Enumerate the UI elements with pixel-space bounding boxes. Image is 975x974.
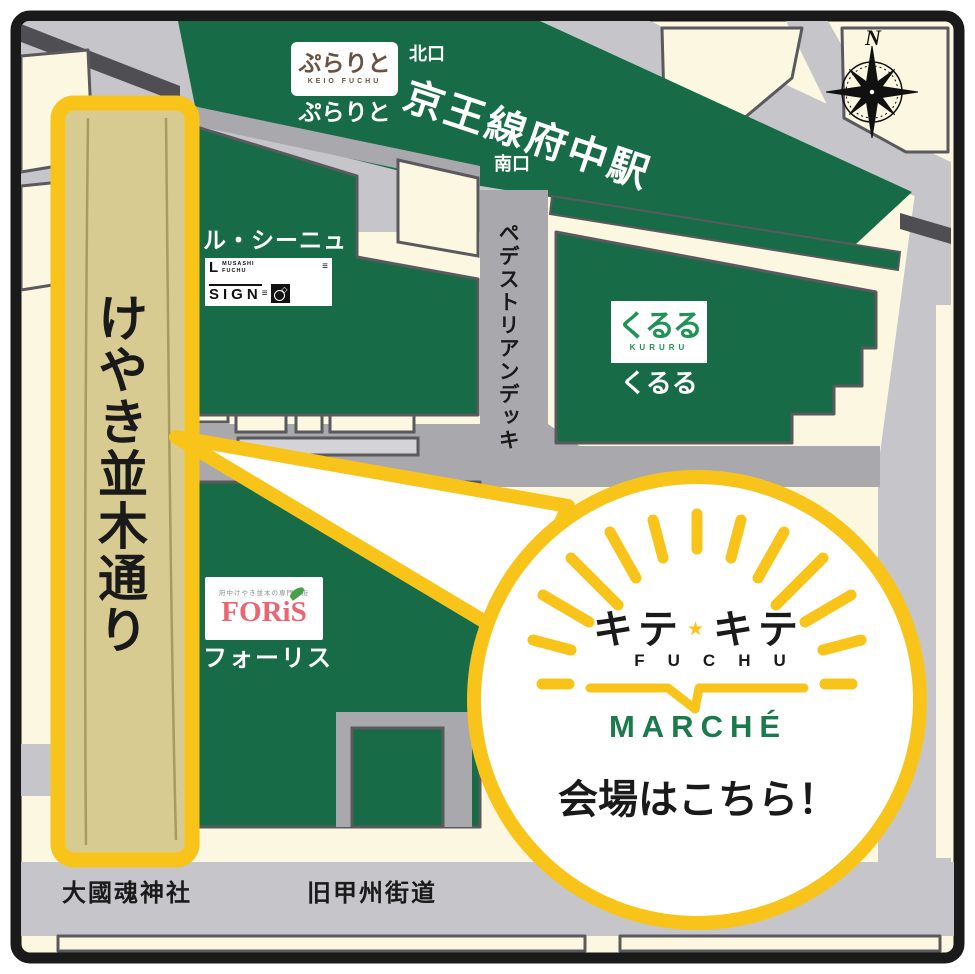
kitekite-left: キテ <box>593 608 683 652</box>
block-south-2 <box>620 936 940 951</box>
purarito-logo-sub: KEIO FUCHU <box>308 78 382 86</box>
purarito-logo: ぷらりと KEIO FUCHU <box>291 42 398 96</box>
compass-north-label: N <box>858 26 888 50</box>
kururu-logo-text: くるる <box>617 312 700 342</box>
lesigne-logo: L MUSASHIFUCHU ≡ SIGN ≡ ◇ <box>205 258 332 306</box>
venue-here-label: 会場はこちら！ <box>545 778 851 822</box>
shrine-label: 大國魂神社 <box>62 881 192 907</box>
lesigne-logo-bars2: ≡ <box>262 288 268 299</box>
star-icon: ★ <box>683 619 713 640</box>
kitekite-logo: キテ★キテ <box>545 608 851 652</box>
lesigne-logo-bars: ≡ <box>322 261 328 272</box>
south-exit-label: 南口 <box>494 155 530 175</box>
fuchu-label: FUCHU <box>545 652 875 671</box>
kururu-logo: くるる KURURU <box>611 301 707 363</box>
lesigne-logo-sign: SIGN <box>209 284 262 304</box>
east-sidewalk <box>936 305 951 858</box>
block-south-1 <box>58 936 585 951</box>
north-exit-label: 北口 <box>409 45 445 65</box>
foris-label: フォーリス <box>203 646 333 672</box>
kitekite-right: キテ <box>713 608 803 652</box>
foris-logo-text: FORiS <box>221 598 306 627</box>
old-koshu-road-label: 旧甲州街道 <box>307 881 437 907</box>
lesigne-logo-musashi-fuchu: MUSASHIFUCHU <box>222 261 254 274</box>
pedestrian-deck-label: ペデストリアンデッキ <box>496 222 519 452</box>
fuchu-area-map: 北口 京王線府中駅 南口 ぷらりと KEIO FUCHU ぷらりと ル・シーニュ… <box>0 0 975 974</box>
lesigne-logo-ornament: ◇ <box>271 284 290 303</box>
marche-label: MARCHÉ <box>545 710 851 744</box>
lesigne-label: ル・シーニュ <box>203 228 347 253</box>
kururu-logo-sub: KURURU <box>630 344 689 353</box>
purarito-logo-text: ぷらりと <box>299 52 391 75</box>
keyaki-street-label: けやき並木通り <box>91 292 146 656</box>
lesigne-logo-l: L <box>209 261 218 275</box>
foris-annex-building <box>352 728 443 827</box>
block-lesigne-east <box>398 160 478 256</box>
purarito-label: ぷらりと <box>291 100 398 125</box>
foris-logo: 府中けやき並木の専門店街 FORiS <box>205 577 323 640</box>
kururu-label: くるる <box>611 369 707 398</box>
